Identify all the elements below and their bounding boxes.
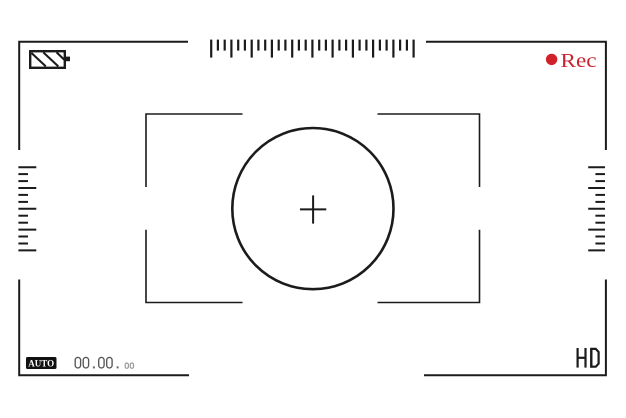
svg-text:AUTO: AUTO <box>28 359 54 369</box>
svg-text:Rec: Rec <box>561 50 597 72</box>
